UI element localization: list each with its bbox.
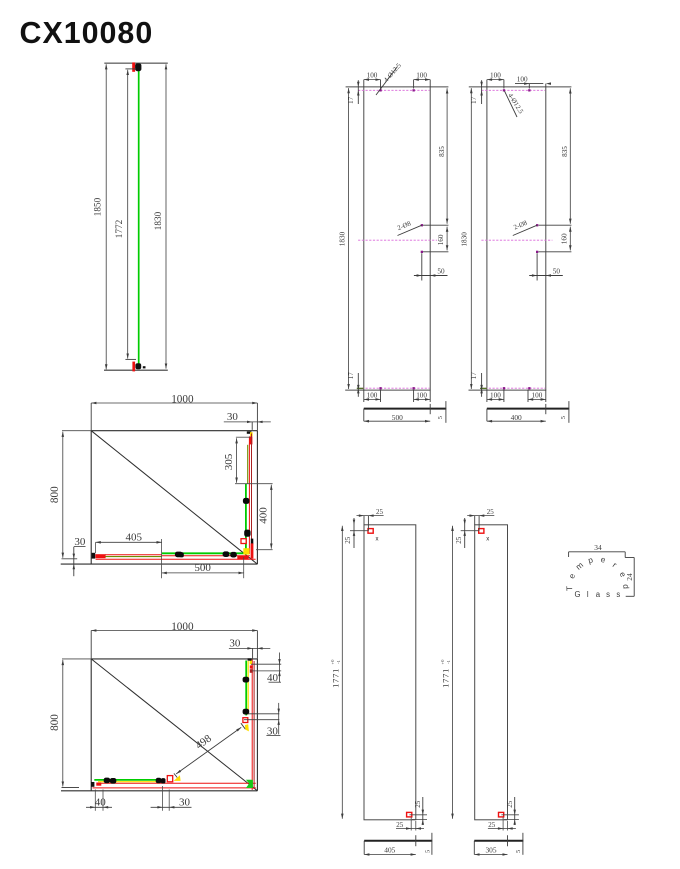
svg-text:100: 100 bbox=[490, 71, 501, 79]
svg-text:30: 30 bbox=[179, 797, 191, 809]
svg-text:30: 30 bbox=[74, 536, 86, 548]
svg-text:T: T bbox=[565, 586, 574, 591]
svg-text:50: 50 bbox=[553, 267, 561, 275]
svg-text:CX10080: CX10080 bbox=[20, 16, 154, 50]
svg-text:40: 40 bbox=[95, 797, 107, 809]
svg-text:l: l bbox=[587, 590, 589, 599]
svg-text:25: 25 bbox=[414, 800, 422, 808]
svg-text:1830: 1830 bbox=[153, 211, 163, 230]
svg-text:+0: +0 bbox=[330, 659, 335, 665]
svg-text:G: G bbox=[574, 590, 580, 599]
svg-text:835: 835 bbox=[561, 146, 569, 157]
svg-text:160: 160 bbox=[560, 233, 568, 244]
svg-text:800: 800 bbox=[49, 714, 61, 731]
svg-text:25: 25 bbox=[396, 821, 404, 829]
svg-text:25: 25 bbox=[344, 536, 352, 544]
svg-text:100: 100 bbox=[490, 391, 501, 399]
svg-text:405: 405 bbox=[126, 532, 143, 544]
svg-text:100: 100 bbox=[416, 71, 427, 79]
svg-text:1830: 1830 bbox=[461, 232, 469, 247]
svg-text:400: 400 bbox=[258, 507, 270, 524]
svg-text:305: 305 bbox=[485, 846, 496, 855]
svg-text:s: s bbox=[616, 590, 620, 599]
svg-text:100: 100 bbox=[517, 75, 528, 83]
svg-text:17: 17 bbox=[347, 96, 355, 104]
svg-text:s: s bbox=[606, 590, 610, 599]
svg-text:5: 5 bbox=[437, 416, 444, 419]
svg-text:405: 405 bbox=[384, 846, 395, 855]
svg-text:1771: 1771 bbox=[441, 668, 451, 688]
svg-text:1000: 1000 bbox=[171, 621, 194, 633]
svg-text:1772: 1772 bbox=[114, 219, 124, 238]
svg-text:100: 100 bbox=[532, 391, 543, 399]
svg-text:25: 25 bbox=[455, 536, 463, 544]
svg-text:500: 500 bbox=[392, 413, 403, 422]
svg-text:+0: +0 bbox=[440, 659, 445, 665]
svg-text:17: 17 bbox=[470, 96, 478, 104]
svg-text:x: x bbox=[376, 537, 379, 543]
svg-text:500: 500 bbox=[194, 562, 211, 574]
svg-text:800: 800 bbox=[49, 486, 61, 503]
svg-text:1771: 1771 bbox=[330, 668, 340, 688]
svg-text:5: 5 bbox=[560, 416, 567, 419]
svg-text:1000: 1000 bbox=[171, 394, 194, 406]
svg-text:25: 25 bbox=[506, 800, 514, 808]
svg-text:d: d bbox=[621, 584, 630, 589]
svg-text:5: 5 bbox=[425, 850, 432, 853]
svg-text:17: 17 bbox=[347, 372, 355, 380]
svg-text:100: 100 bbox=[367, 391, 378, 399]
svg-text:a: a bbox=[596, 590, 601, 599]
svg-text:400: 400 bbox=[511, 413, 522, 422]
svg-text:25: 25 bbox=[488, 821, 496, 829]
svg-text:305: 305 bbox=[223, 453, 235, 470]
svg-text:100: 100 bbox=[367, 71, 378, 79]
svg-text:160: 160 bbox=[437, 234, 445, 245]
svg-text:5: 5 bbox=[515, 850, 522, 853]
svg-text:1830: 1830 bbox=[339, 231, 347, 246]
svg-text:x: x bbox=[486, 537, 489, 543]
svg-text:30: 30 bbox=[229, 638, 241, 650]
svg-text:835: 835 bbox=[438, 146, 446, 157]
svg-text:100: 100 bbox=[416, 391, 427, 399]
svg-text:1850: 1850 bbox=[93, 197, 103, 216]
svg-text:34: 34 bbox=[594, 543, 602, 552]
svg-text:50: 50 bbox=[437, 267, 445, 275]
svg-text:25: 25 bbox=[376, 508, 384, 516]
svg-text:25: 25 bbox=[487, 508, 495, 516]
svg-text:30: 30 bbox=[227, 411, 239, 423]
svg-text:17: 17 bbox=[470, 372, 478, 380]
